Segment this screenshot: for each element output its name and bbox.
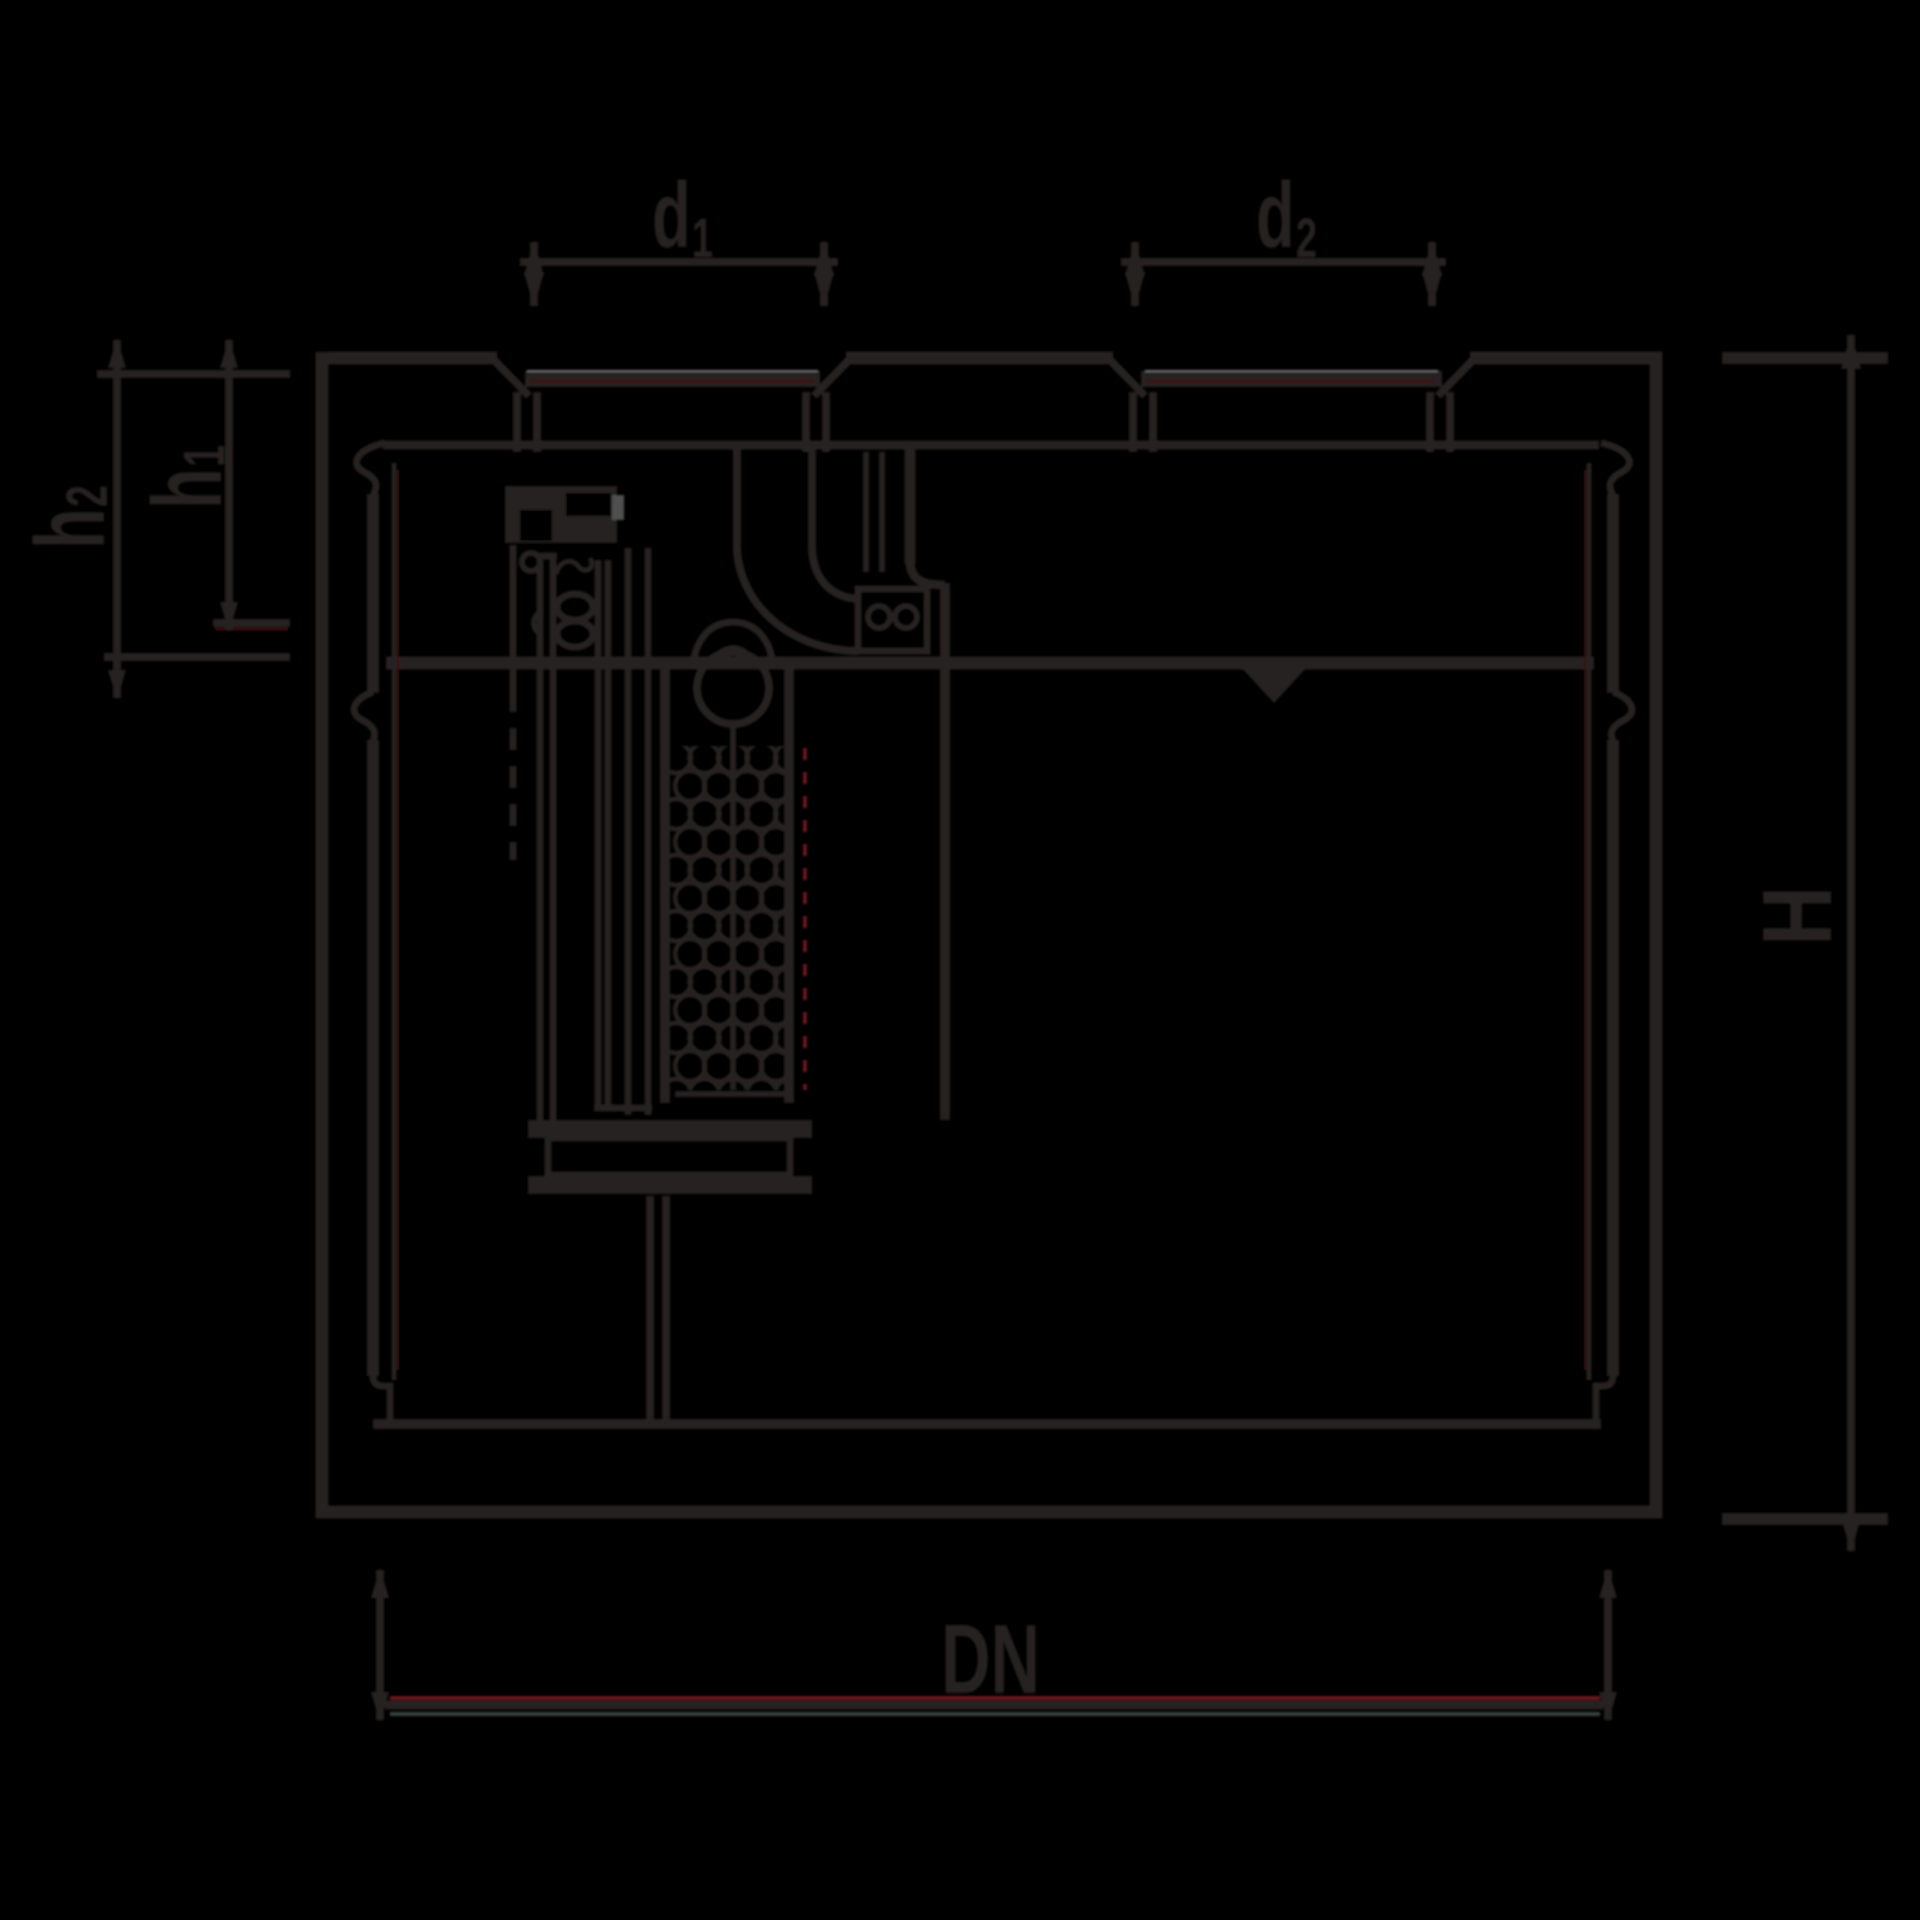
svg-text:1: 1 (171, 445, 236, 467)
svg-text:2: 2 (54, 485, 119, 507)
svg-text:1: 1 (692, 208, 713, 270)
svg-text:DN: DN (941, 1604, 1040, 1714)
svg-text:d: d (1256, 163, 1295, 267)
svg-text:2: 2 (1296, 208, 1317, 270)
svg-text:d: d (652, 163, 691, 267)
svg-text:h: h (132, 468, 242, 509)
svg-text:h: h (15, 508, 125, 549)
svg-text:H: H (1744, 886, 1853, 946)
